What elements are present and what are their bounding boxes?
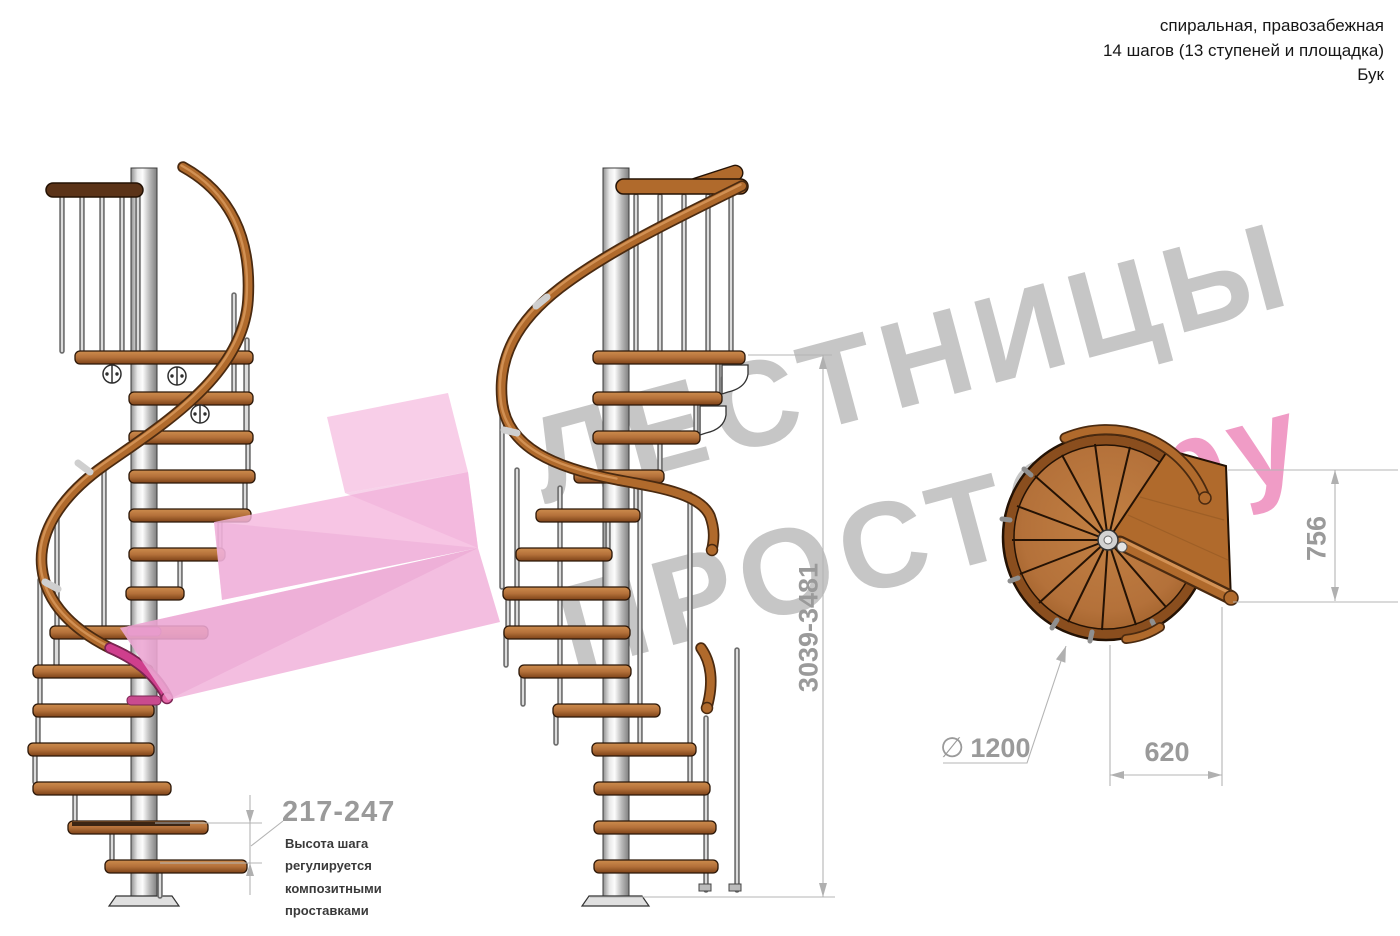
step <box>503 587 630 600</box>
step <box>33 704 154 717</box>
spec-steps: 14 шагов (13 ступеней и площадка) <box>1103 39 1384 64</box>
pole-base <box>109 896 179 906</box>
step-bracket <box>722 365 748 394</box>
spec-material: Бук <box>1103 63 1384 88</box>
step <box>594 782 710 795</box>
note-line: Высота шага <box>285 833 382 855</box>
diameter-value: 1200 <box>970 733 1030 763</box>
joint-disc <box>103 365 121 383</box>
baluster-foot <box>699 884 711 891</box>
step <box>593 431 700 444</box>
note-line: регулируется <box>285 855 382 877</box>
highlighted-collar <box>127 696 161 705</box>
diameter-icon: ∅ <box>940 731 970 764</box>
step <box>593 392 722 405</box>
note-line: проставками <box>285 900 382 922</box>
step <box>105 860 247 873</box>
step <box>594 821 716 834</box>
staircase-drawing <box>0 0 1400 936</box>
step <box>553 704 660 717</box>
step <box>519 665 631 678</box>
step <box>28 743 154 756</box>
dim-landing-width-label: 620 <box>1136 737 1198 768</box>
joint-disc <box>168 367 186 385</box>
step <box>536 509 640 522</box>
step <box>592 743 696 756</box>
dim-landing-depth-label: 756 <box>1302 499 1333 579</box>
step <box>594 860 718 873</box>
baluster-foot <box>729 884 741 891</box>
step-bracket <box>700 406 726 435</box>
step <box>129 470 255 483</box>
note-line: композитными <box>285 878 382 900</box>
platform-step <box>593 351 745 364</box>
dim-step-height-note: Высота шага регулируется композитными пр… <box>285 833 382 922</box>
step <box>504 626 630 639</box>
step <box>126 587 184 600</box>
dim-step-height-lines <box>155 795 283 895</box>
plan-view <box>1002 430 1238 641</box>
step <box>129 548 225 561</box>
platform-rail <box>46 183 143 197</box>
dim-diameter-label: ∅1200 <box>940 731 1030 764</box>
step <box>33 782 171 795</box>
title-block: спиральная, правозабежная 14 шагов (13 с… <box>1103 14 1384 88</box>
joint-disc <box>191 405 209 423</box>
step <box>516 548 612 561</box>
dim-step-height-label: 217-247 <box>282 796 395 829</box>
elevation-side <box>500 163 748 906</box>
dim-total-height-label: 3039-3481 <box>794 545 825 711</box>
drawing-sheet: ЛЕСТНИЦЫ ПРОСТО.ру <box>0 0 1400 936</box>
spec-type: спиральная, правозабежная <box>1103 14 1384 39</box>
